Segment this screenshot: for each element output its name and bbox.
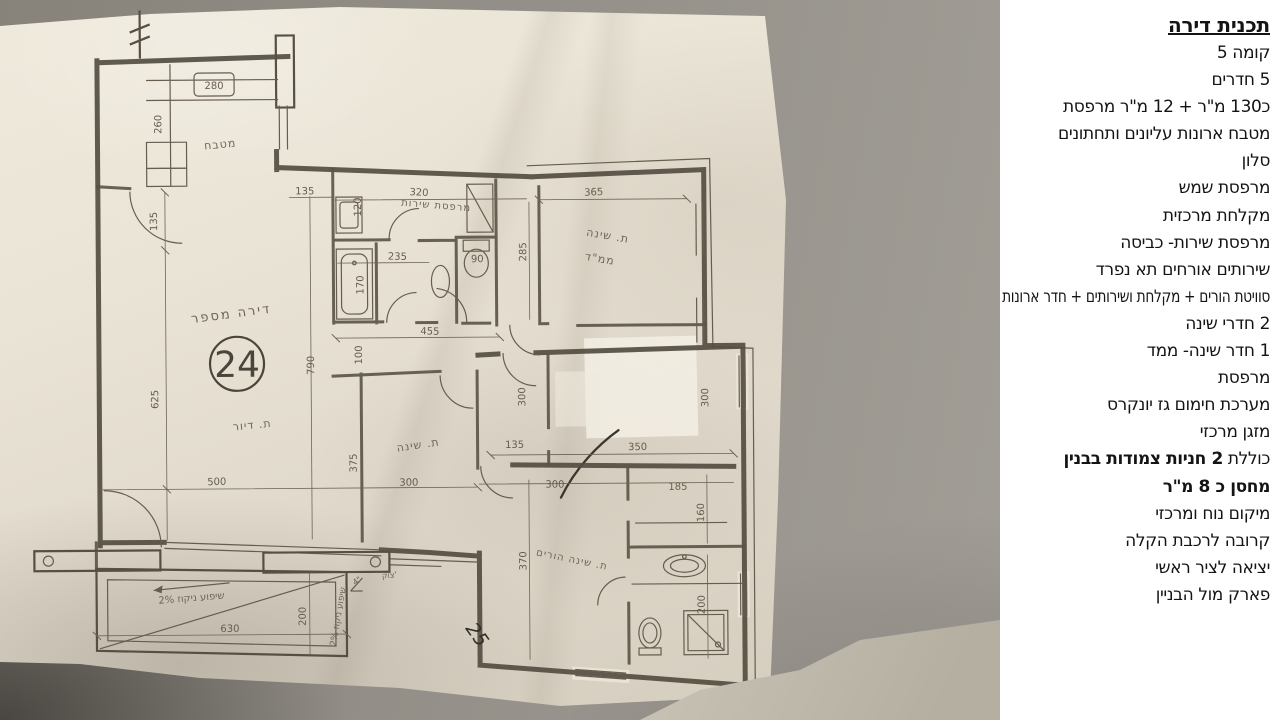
listing-line: מרפסת שמש xyxy=(1002,175,1270,202)
bathtub xyxy=(336,249,372,319)
floorplan-photo: דירה מספר 24 מטבח ת. דיור מרפסת שירות ת.… xyxy=(0,0,1000,720)
room-label-service-balcony: מרפסת שירות xyxy=(401,198,472,215)
screenshot-root: דירה מספר 24 מטבח ת. דיור מרפסת שירות ת.… xyxy=(0,0,1280,720)
dim-label: 320 xyxy=(409,187,429,199)
listing-line: מקלחת מרכזית xyxy=(1002,203,1270,230)
room-label-mamad-2: ממ"ד xyxy=(584,250,616,268)
dim-label: 280 xyxy=(204,81,223,92)
dim-label: 160 xyxy=(696,503,707,522)
dim-label: 200 xyxy=(697,595,708,614)
dim-label: 135 xyxy=(149,212,160,231)
dim-label: 260 xyxy=(153,115,164,134)
dim-label: 170 xyxy=(355,275,366,294)
room-label-kitchen: מטבח xyxy=(204,136,237,152)
dim-label: 135 xyxy=(295,186,314,197)
dim-label: 300 xyxy=(700,388,711,407)
dim-label: 625 xyxy=(150,390,161,409)
listing-line: 5 חדרים xyxy=(1002,67,1270,94)
listing-line: 2 חדרי שינה xyxy=(1002,311,1270,338)
listing-line: סוויטת הורים + מקלחת ושירותים + חדר ארונ… xyxy=(1053,284,1270,311)
listing-title: תכנית דירה xyxy=(1002,10,1270,40)
dim-label: 790 xyxy=(306,356,317,375)
floor-plan-drawing: דירה מספר 24 מטבח ת. דיור מרפסת שירות ת.… xyxy=(0,0,1000,720)
room-label-mamad: ת. שינה xyxy=(585,226,630,246)
listing-line: שירותים אורחים תא נפרד xyxy=(1002,257,1270,284)
listing-line: מרפסת xyxy=(1002,365,1270,392)
listing-line: מרפסת שירות- כביסה xyxy=(1002,230,1270,257)
dim-label: 300 xyxy=(399,478,418,489)
listing-line: מיקום נוח ומרכזי xyxy=(1002,501,1270,528)
listing-line: פארק מול הבניין xyxy=(1002,582,1270,609)
curb-note: צוק' xyxy=(381,570,397,580)
apartment-label: דירה מספר xyxy=(190,302,272,327)
listing-line: סלון xyxy=(1002,148,1270,175)
listing-lines: קומה 55 חדריםכ130 מ"ר + 12 מ"ר מרפסתמטבח… xyxy=(1002,40,1270,609)
vanity-sink xyxy=(631,522,744,584)
dim-label: 300 xyxy=(517,387,528,406)
listing-panel: תכנית דירה קומה 55 חדריםכ130 מ"ר + 12 מ"… xyxy=(1000,0,1280,720)
shower-stall xyxy=(684,610,728,654)
dim-label: 365 xyxy=(584,187,604,199)
dim-label: 100 xyxy=(354,345,365,364)
dim-label: 370 xyxy=(518,551,529,570)
slope-note: שיפוע ניקוז 2% xyxy=(158,591,225,607)
dim-label: 135 xyxy=(505,440,524,451)
listing-line: 1 חדר שינה- ממד xyxy=(1002,338,1270,365)
dim-label: 500 xyxy=(207,477,226,488)
listing-line: מחסן כ 8 מ"ר xyxy=(1002,474,1270,501)
room-label-bedroom: ת. שינה xyxy=(396,436,441,455)
listing-line: מטבח ארונות עליונים ותחתונים xyxy=(1002,121,1270,148)
dim-label: 300 xyxy=(545,480,564,491)
listing-line: קרובה לרכבת הקלה xyxy=(1002,528,1270,555)
column xyxy=(276,35,295,107)
dim-label: 185 xyxy=(668,482,687,493)
wall-break-icon xyxy=(130,10,150,58)
dim-label: 630 xyxy=(220,624,239,635)
room-label-parents-bedroom: ת. שינה הורים xyxy=(535,547,608,572)
slope-angle: 4" xyxy=(351,575,363,587)
listing-line: יציאה לציר ראשי xyxy=(1002,555,1270,582)
listing-line: מזגן מרכזי xyxy=(1002,419,1270,446)
listing-line: מערכת חימום גז יונקרס xyxy=(1002,392,1270,419)
dim-label: 235 xyxy=(388,251,407,263)
room-label-living: ת. דיור xyxy=(232,417,272,434)
dim-label: 375 xyxy=(349,453,360,472)
handwritten-mark: 25 xyxy=(461,618,493,650)
dim-label: 285 xyxy=(518,242,529,261)
dim-label: 120 xyxy=(353,197,364,216)
listing-line: כ130 מ"ר + 12 מ"ר מרפסת xyxy=(1002,94,1270,121)
dim-label: 455 xyxy=(420,326,439,338)
pedestal-sink xyxy=(431,265,449,297)
apartment-number: 24 xyxy=(214,345,260,386)
dim-label: 90 xyxy=(471,254,484,265)
dim-label: 200 xyxy=(298,607,309,626)
toilet xyxy=(639,618,661,655)
listing-line: קומה 5 xyxy=(1002,40,1270,67)
fridge xyxy=(146,142,186,186)
listing-line: כוללת 2 חניות צמודות בבנין xyxy=(1002,446,1270,473)
dim-label: 350 xyxy=(628,442,647,453)
